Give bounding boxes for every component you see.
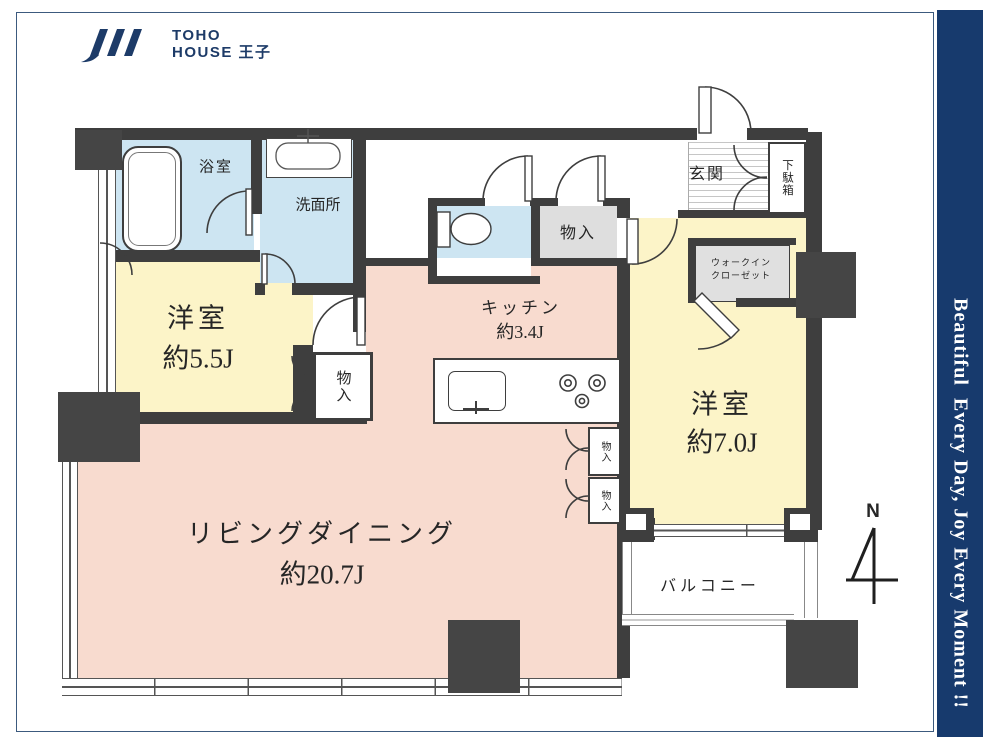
- wall-segment: [530, 198, 558, 206]
- room-toilet: [436, 206, 531, 258]
- logo-line2: HOUSE 王子: [172, 44, 272, 61]
- wall-segment: [353, 140, 366, 332]
- wall-segment: [736, 298, 796, 307]
- wall-segment: [531, 206, 540, 266]
- label-living-name: リビングダイニング: [187, 514, 457, 551]
- side-banner: Beautiful Every Day, Joy Every Moment !!: [937, 10, 983, 737]
- kitchen-counter: [433, 358, 621, 424]
- wall-segment: [251, 140, 262, 214]
- toho-house-logo: TOHO HOUSE 王子: [80, 24, 340, 70]
- living-storage-lower: 物入: [588, 477, 621, 524]
- shoe-cabinet: 下駄箱: [768, 142, 806, 214]
- wall-segment: [620, 210, 630, 218]
- label-hall-storage: 物入: [560, 219, 596, 243]
- living-storage-lower-label: 物入: [597, 490, 612, 512]
- label-living-size: 約20.7J: [280, 553, 365, 592]
- label-wic-line2: クローゼット: [711, 269, 771, 282]
- bedroom1-storage: 物入: [313, 352, 373, 421]
- label-balcony: バルコニー: [660, 572, 760, 596]
- balcony-railing: [622, 542, 632, 618]
- label-bath: 浴室: [199, 156, 233, 177]
- balcony-railing: [622, 614, 794, 626]
- north-label: N: [866, 501, 880, 523]
- wall-segment: [75, 128, 697, 140]
- side-banner-text: Beautiful Every Day, Joy Every Moment !!: [949, 10, 972, 737]
- living-storage-upper-label: 物入: [597, 441, 612, 463]
- wall-segment: [110, 250, 260, 262]
- wall-segment: [806, 132, 822, 254]
- label-bedroom1-size: 約5.5J: [162, 337, 233, 376]
- room-living-dining: [76, 424, 617, 678]
- corner-block: [784, 508, 818, 542]
- wall-segment: [747, 128, 808, 140]
- pillar: [786, 620, 858, 688]
- label-bedroom2-size: 約7.0J: [686, 421, 757, 460]
- window: [654, 524, 784, 537]
- kitchen-sink: [448, 371, 506, 411]
- bathtub: [122, 146, 182, 252]
- logo-line1: TOHO: [172, 27, 272, 44]
- label-bedroom1-name: 洋室: [167, 297, 229, 336]
- pillar: [75, 130, 122, 170]
- label-entrance: 玄関: [689, 160, 725, 184]
- label-kitchen-size: 約3.4J: [496, 318, 544, 344]
- label-bedroom2-name: 洋室: [691, 383, 753, 422]
- toho-logo-icon: [80, 24, 170, 70]
- window: [62, 462, 78, 680]
- window: [62, 678, 622, 696]
- label-kitchen-name: キッチン: [481, 294, 561, 319]
- bedroom1-storage-label: 物入: [333, 370, 354, 404]
- wall-segment: [255, 283, 265, 295]
- wall-segment: [428, 198, 437, 284]
- wall-segment: [806, 318, 822, 530]
- corner-block: [620, 508, 654, 542]
- label-washroom: 洗面所: [295, 194, 340, 215]
- toilet-counter: [436, 258, 531, 276]
- wall-segment: [360, 258, 430, 266]
- window: [98, 168, 116, 394]
- label-wic-line1: ウォークイン: [711, 256, 771, 269]
- wall-segment: [428, 276, 540, 284]
- pillar: [796, 252, 856, 318]
- wall-segment: [688, 238, 695, 303]
- wall-segment: [293, 345, 313, 412]
- pillar: [58, 392, 140, 462]
- wall-segment: [688, 238, 796, 245]
- balcony-railing: [804, 542, 818, 618]
- logo-text: TOHO HOUSE 王子: [172, 27, 272, 61]
- pillar: [448, 620, 520, 693]
- washbasin-cabinet: [266, 138, 352, 178]
- shoe-cabinet-label: 下駄箱: [779, 159, 795, 197]
- living-storage-upper: 物入: [588, 427, 621, 476]
